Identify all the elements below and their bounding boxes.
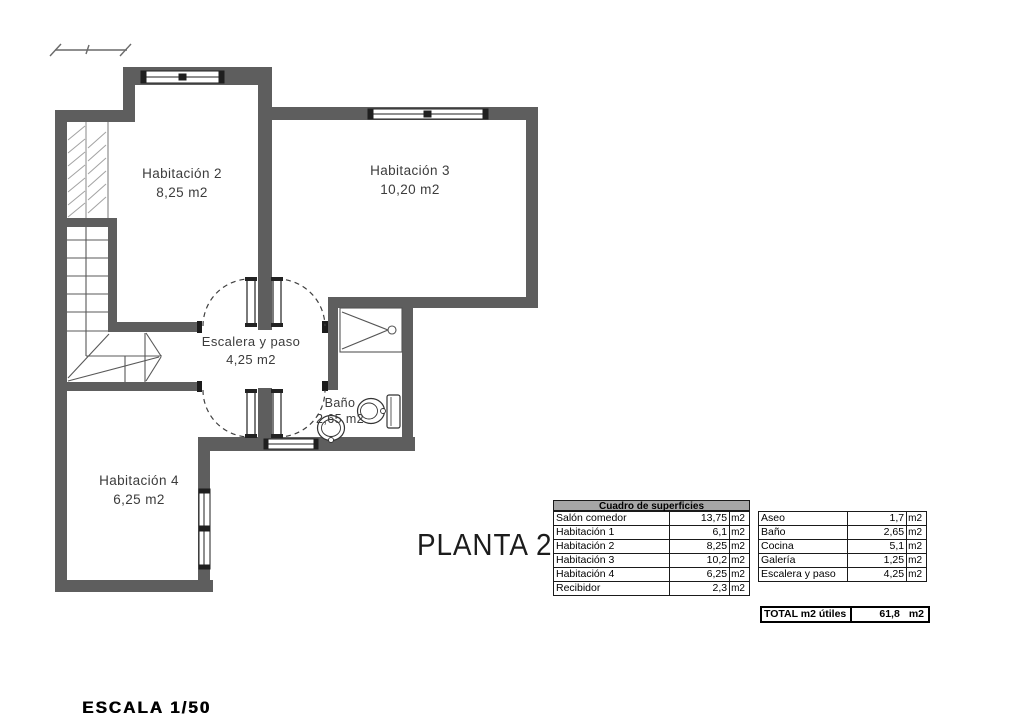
sink-tap [329, 438, 334, 443]
area-value-cell: 6,1 [670, 526, 730, 540]
room-name-cell: Habitación 2 [554, 540, 670, 554]
door-leaf [273, 390, 281, 437]
room-label-bano: Baño 2,65 m2 [300, 395, 380, 427]
room-label-habitacion-4: Habitación 4 6,25 m2 [59, 471, 219, 509]
room-name-cell: Escalera y paso [759, 568, 848, 582]
door-leaf [247, 280, 255, 326]
table-row: Cocina 5,1 m2 [759, 540, 927, 554]
unit-cell: m2 [907, 540, 927, 554]
table-row: Salón comedor 13,75 m2 [554, 512, 750, 526]
room-name: Habitación 4 [59, 471, 219, 490]
window-hab3 [368, 109, 488, 119]
floor-plan-sheet: Habitación 2 8,25 m2 Habitación 3 10,20 … [0, 0, 1024, 724]
door-swing-arc [203, 390, 251, 437]
scale-label: ESCALA 1/50 [82, 698, 211, 718]
total-row: TOTAL m2 útiles 61,8 m2 [760, 606, 930, 623]
door-jamb-tick [197, 381, 202, 392]
window-hab2 [141, 71, 224, 83]
door-swing-arc [203, 279, 251, 326]
room-area: 10,20 m2 [330, 180, 490, 199]
room-area: 4,25 m2 [171, 351, 331, 369]
area-value-cell: 6,25 [670, 568, 730, 582]
table-row: Galería 1,25 m2 [759, 554, 927, 568]
walls [55, 67, 538, 592]
toilet-tank [387, 395, 400, 428]
room-area: 8,25 m2 [102, 183, 262, 202]
door-swing-arc [277, 279, 325, 326]
table-row: Habitación 1 6,1 m2 [554, 526, 750, 540]
door-jamb-tick [197, 321, 202, 333]
total-label: TOTAL m2 útiles [762, 608, 852, 621]
wall-outer-left [55, 110, 67, 592]
wall-hall-bottom [55, 382, 202, 391]
room-name: Habitación 2 [102, 164, 262, 183]
table-row: Escalera y paso 4,25 m2 [759, 568, 927, 582]
wall-stair-right [108, 227, 117, 332]
window-bath-bottom [264, 439, 318, 449]
room-name-cell: Aseo [759, 512, 848, 526]
room-name: Habitación 3 [330, 161, 490, 180]
door-jamb-tick [322, 321, 328, 333]
unit-cell: m2 [907, 554, 927, 568]
area-value-cell: 10,2 [670, 554, 730, 568]
area-value-cell: 13,75 [670, 512, 730, 526]
wall-hall-top [110, 322, 202, 332]
room-name-cell: Habitación 1 [554, 526, 670, 540]
table-row: Habitación 2 8,25 m2 [554, 540, 750, 554]
room-name-cell: Cocina [759, 540, 848, 554]
room-label-habitacion-3: Habitación 3 10,20 m2 [330, 161, 490, 199]
unit-cell: m2 [730, 512, 750, 526]
table-row: Habitación 3 10,2 m2 [554, 554, 750, 568]
room-name: Escalera y paso [171, 333, 331, 351]
surfaces-table-title: Cuadro de superficies [553, 500, 750, 511]
total-amount: 61,8 [879, 608, 899, 621]
page-title: PLANTA 2 [417, 528, 552, 562]
room-label-habitacion-2: Habitación 2 8,25 m2 [102, 164, 262, 202]
room-name-cell: Galería [759, 554, 848, 568]
room-name-cell: Baño [759, 526, 848, 540]
shower [340, 308, 402, 352]
area-value-cell: 8,25 [670, 540, 730, 554]
area-value-cell: 1,7 [848, 512, 907, 526]
wall-bano-top [328, 297, 538, 308]
total-value: 61,8 m2 [852, 608, 928, 621]
table-row: Baño 2,65 m2 [759, 526, 927, 540]
table-row: Aseo 1,7 m2 [759, 512, 927, 526]
scale-marker [50, 44, 131, 56]
table-row: Recibidor 2,3 m2 [554, 582, 750, 596]
area-value-cell: 4,25 [848, 568, 907, 582]
room-name-cell: Habitación 4 [554, 568, 670, 582]
unit-cell: m2 [730, 582, 750, 596]
room-area: 2,65 m2 [300, 411, 380, 427]
unit-cell: m2 [730, 540, 750, 554]
wall-bano-east [402, 297, 413, 447]
total-unit: m2 [909, 608, 924, 621]
unit-cell: m2 [730, 568, 750, 582]
room-area: 6,25 m2 [59, 490, 219, 509]
surfaces-table-right: Aseo 1,7 m2 Baño 2,65 m2 Cocina 5,1 m2 G… [758, 511, 927, 582]
area-value-cell: 2,3 [670, 582, 730, 596]
wall-hab4-bottom [55, 580, 213, 592]
unit-cell: m2 [907, 512, 927, 526]
area-value-cell: 5,1 [848, 540, 907, 554]
door-leaf [247, 390, 255, 437]
area-value-cell: 1,25 [848, 554, 907, 568]
room-label-escalera: Escalera y paso 4,25 m2 [171, 333, 331, 369]
unit-cell: m2 [907, 526, 927, 540]
unit-cell: m2 [730, 526, 750, 540]
room-name-cell: Habitación 3 [554, 554, 670, 568]
room-name-cell: Salón comedor [554, 512, 670, 526]
wall-stair-top [55, 218, 117, 227]
room-name: Baño [300, 395, 380, 411]
wall-hab3-right [526, 107, 538, 308]
door-jamb-tick [322, 381, 328, 391]
room-name-cell: Recibidor [554, 582, 670, 596]
shower-drain [388, 326, 396, 334]
door-leaf [273, 280, 281, 326]
area-value-cell: 2,65 [848, 526, 907, 540]
unit-cell: m2 [730, 554, 750, 568]
surfaces-table-left: Cuadro de superficies Salón comedor 13,7… [553, 500, 750, 596]
unit-cell: m2 [907, 568, 927, 582]
table-row: Habitación 4 6,25 m2 [554, 568, 750, 582]
